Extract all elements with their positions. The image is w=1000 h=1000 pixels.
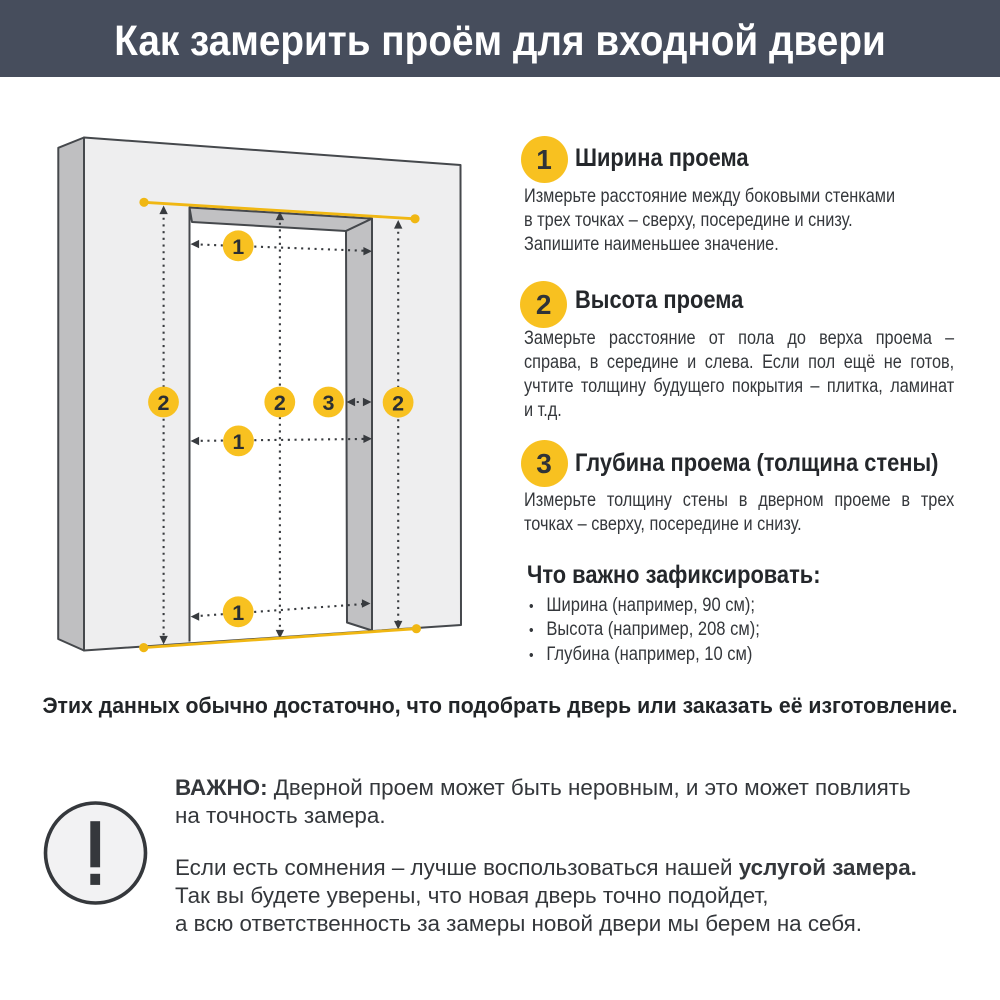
svg-text:3: 3 xyxy=(323,391,335,415)
svg-text:1: 1 xyxy=(232,235,244,259)
svg-text:1: 1 xyxy=(233,430,245,454)
svg-text:1: 1 xyxy=(232,601,244,625)
svg-text:2: 2 xyxy=(392,391,404,415)
svg-text:2: 2 xyxy=(274,391,286,415)
svg-text:2: 2 xyxy=(158,391,170,415)
